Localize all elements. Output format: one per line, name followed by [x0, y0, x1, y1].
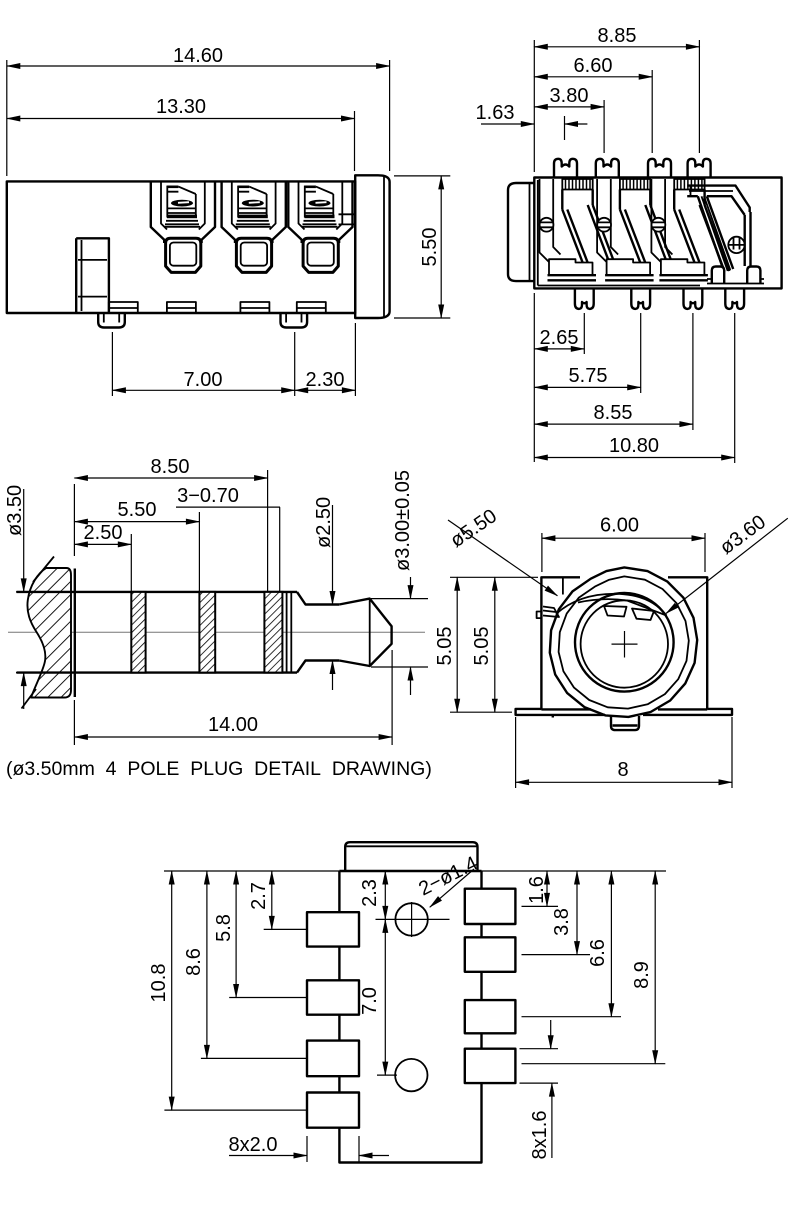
svg-text:3.8: 3.8 [551, 908, 573, 936]
svg-text:5.50: 5.50 [419, 228, 441, 267]
svg-text:8: 8 [617, 759, 628, 781]
svg-text:(ø3.50mm 4 POLE PLUG DETAI: (ø3.50mm 4 POLE PLUG DETAIL DRAWING) [6, 758, 432, 780]
svg-text:3.80: 3.80 [550, 85, 589, 107]
svg-text:ø2.50: ø2.50 [313, 497, 335, 548]
svg-text:6.6: 6.6 [587, 939, 609, 967]
svg-text:2.50: 2.50 [84, 522, 123, 544]
svg-text:10.80: 10.80 [609, 435, 659, 457]
svg-text:3−0.70: 3−0.70 [177, 485, 239, 507]
svg-text:8.55: 8.55 [594, 402, 633, 424]
svg-text:2.7: 2.7 [248, 882, 270, 910]
svg-text:8.9: 8.9 [631, 961, 653, 989]
svg-text:2.3: 2.3 [359, 879, 381, 907]
svg-text:8.85: 8.85 [598, 25, 637, 47]
svg-text:14.00: 14.00 [208, 714, 258, 736]
svg-text:8x1.6: 8x1.6 [529, 1111, 551, 1160]
svg-text:13.30: 13.30 [156, 96, 206, 118]
svg-text:ø3.00±0.05: ø3.00±0.05 [392, 470, 414, 571]
svg-text:6.60: 6.60 [574, 55, 613, 77]
svg-text:10.8: 10.8 [148, 964, 170, 1003]
svg-text:1.63: 1.63 [476, 102, 515, 124]
svg-text:6.00: 6.00 [600, 515, 639, 537]
svg-text:ø3.50: ø3.50 [4, 485, 26, 536]
svg-text:2.30: 2.30 [306, 369, 345, 391]
svg-text:1.6: 1.6 [526, 876, 548, 904]
svg-text:7.0: 7.0 [359, 987, 381, 1015]
svg-text:8.50: 8.50 [151, 456, 190, 478]
svg-text:7.00: 7.00 [184, 369, 223, 391]
svg-text:5.50: 5.50 [118, 499, 157, 521]
svg-text:5.8: 5.8 [213, 914, 235, 942]
svg-text:5.05: 5.05 [434, 627, 456, 666]
svg-text:8x2.0: 8x2.0 [229, 1134, 278, 1156]
svg-text:2.65: 2.65 [540, 327, 579, 349]
svg-text:5.05: 5.05 [471, 627, 493, 666]
svg-text:14.60: 14.60 [173, 45, 223, 67]
svg-text:8.6: 8.6 [183, 948, 205, 976]
svg-text:5.75: 5.75 [569, 365, 608, 387]
